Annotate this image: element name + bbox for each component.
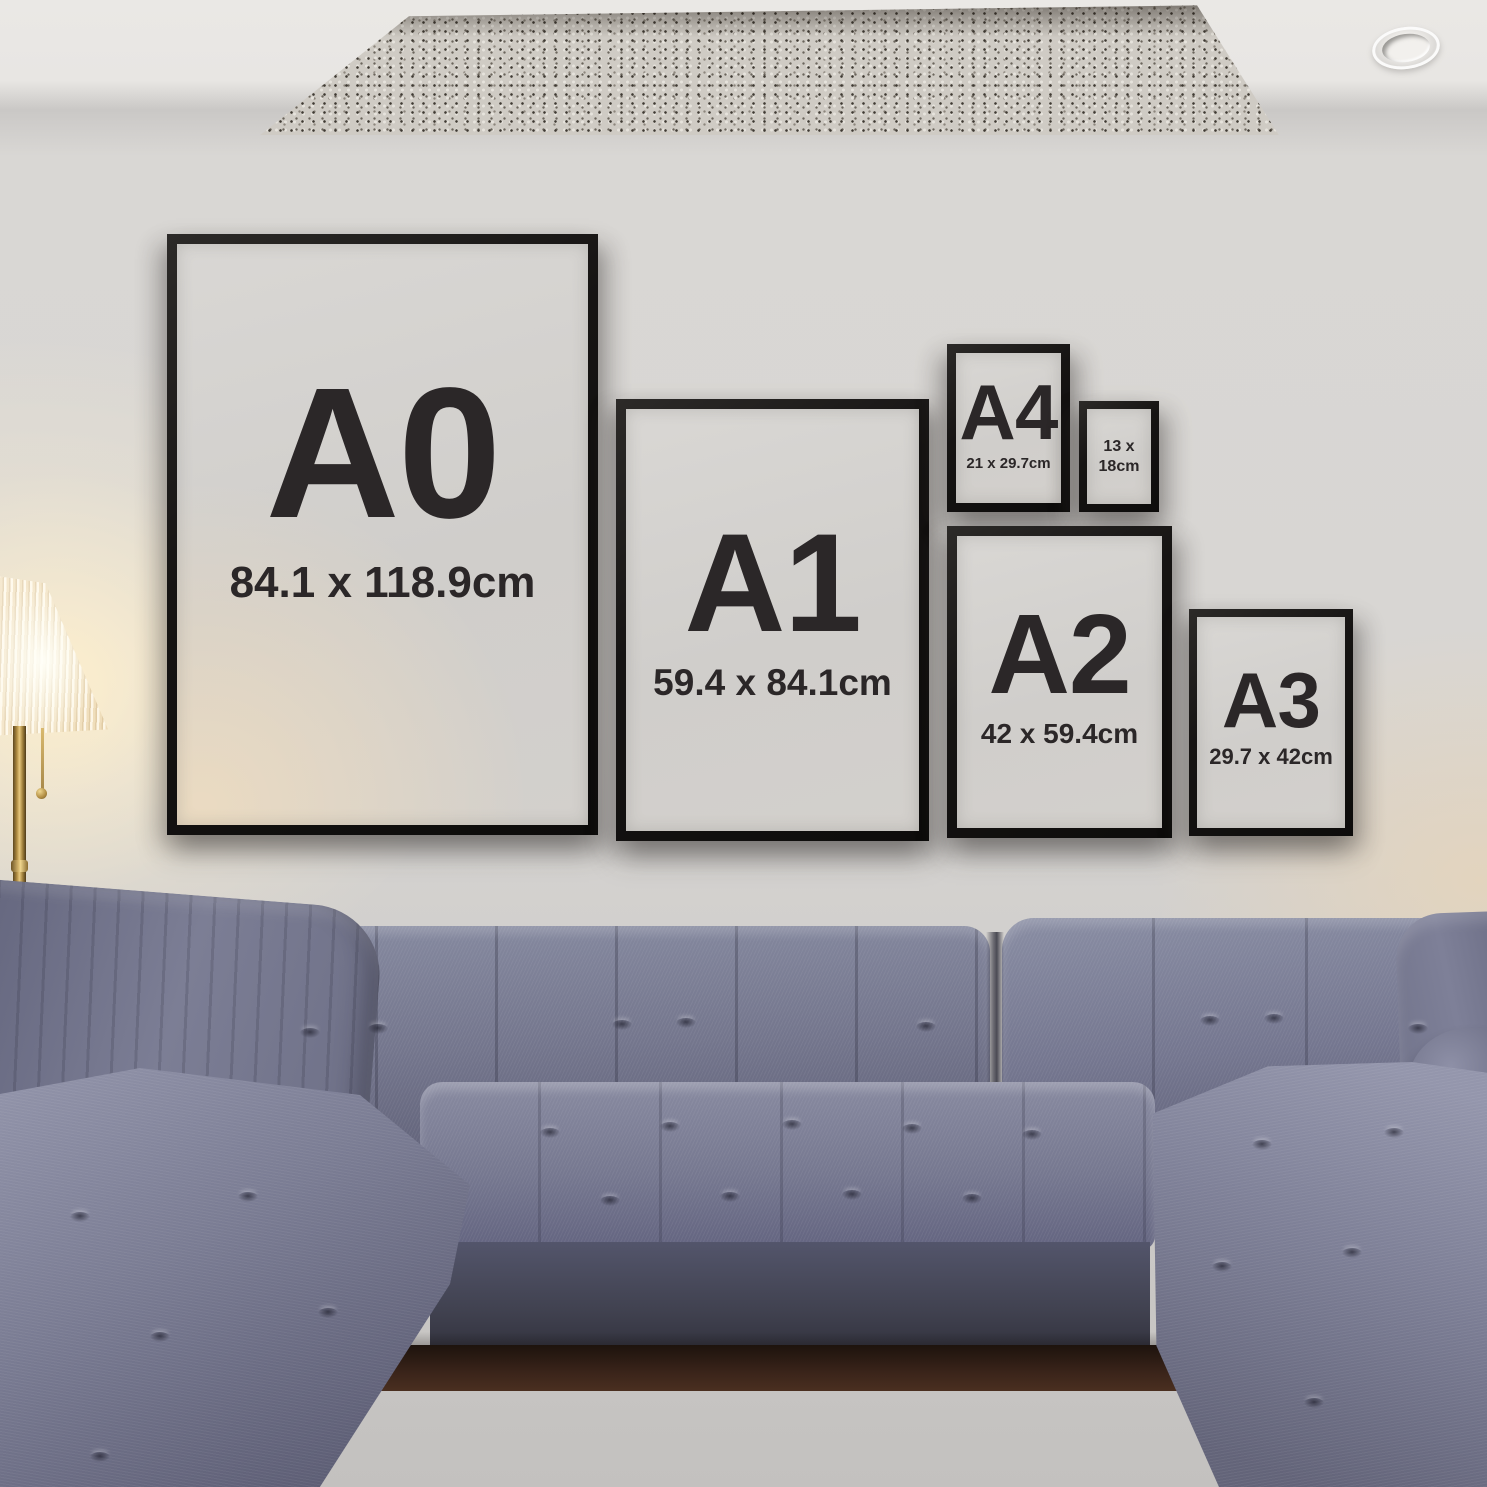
sofa-tuft	[916, 1022, 936, 1032]
poster-frame-a3: A3 29.7 x 42cm	[1189, 609, 1353, 836]
sofa-tuft	[540, 1128, 560, 1138]
poster-content-a1: A1 59.4 x 84.1cm	[653, 513, 892, 704]
poster-frame-a4: A4 21 x 29.7cm	[947, 344, 1070, 512]
sofa-tuft	[368, 1024, 388, 1034]
poster-frame-13x18: 13 x 18cm	[1079, 401, 1159, 512]
size-dimensions-13x18: 13 x 18cm	[1099, 437, 1140, 475]
sofa-chaise-left	[0, 1068, 470, 1487]
lamp-pole-joint	[11, 860, 28, 872]
sofa-tuft	[962, 1194, 982, 1204]
size-dimensions-a1: 59.4 x 84.1cm	[653, 663, 892, 704]
sofa-tuft	[1384, 1128, 1404, 1138]
size-label-a3: A3	[1222, 661, 1320, 739]
poster-content-13x18: 13 x 18cm	[1099, 437, 1140, 475]
sofa-tuft	[600, 1196, 620, 1206]
sofa-chaise-right	[1142, 1062, 1487, 1487]
poster-mat-a1: A1 59.4 x 84.1cm	[626, 409, 919, 831]
sofa-tuft	[1252, 1140, 1272, 1150]
sofa-tuft	[676, 1018, 696, 1028]
size-dimensions-a2: 42 x 59.4cm	[981, 719, 1138, 750]
size-label-a1: A1	[684, 513, 860, 653]
sofa-tuft	[612, 1020, 632, 1030]
size-dimensions-a4: 21 x 29.7cm	[966, 456, 1050, 473]
sofa-tuft	[1304, 1398, 1324, 1408]
wood-floor	[340, 1345, 1280, 1391]
poster-frame-a0: A0 84.1 x 118.9cm	[167, 234, 598, 835]
sofa-tuft	[1264, 1014, 1284, 1024]
size-dimensions-a3: 29.7 x 42cm	[1209, 745, 1333, 769]
sofa-tuft	[902, 1124, 922, 1134]
sofa-tuft	[70, 1212, 90, 1222]
poster-content-a3: A3 29.7 x 42cm	[1209, 661, 1333, 769]
sofa-tuft	[90, 1452, 110, 1462]
size-dimensions-a0: 84.1 x 118.9cm	[230, 559, 536, 607]
sofa-tuft	[318, 1308, 338, 1318]
sofa-tuft	[1022, 1130, 1042, 1140]
recessed-ceiling-light	[1369, 22, 1442, 73]
sofa-seat-cushion-center	[420, 1082, 1155, 1250]
poster-mat-a3: A3 29.7 x 42cm	[1197, 617, 1345, 828]
poster-mat-a0: A0 84.1 x 118.9cm	[177, 244, 588, 825]
ceiling-light-inner-ring	[1380, 31, 1431, 65]
poster-mat-a2: A2 42 x 59.4cm	[957, 536, 1162, 828]
sofa-tuft	[1408, 1024, 1428, 1034]
lamp-pull-chain-ball	[36, 788, 47, 799]
sofa-tuft	[1200, 1016, 1220, 1026]
size-label-a2: A2	[988, 598, 1130, 711]
sofa-tuft	[720, 1192, 740, 1202]
lamp-pull-chain	[41, 728, 44, 790]
sofa-tuft	[782, 1120, 802, 1130]
living-room-photo: A0 84.1 x 118.9cm A1 59.4 x 84.1cm A4 21…	[0, 0, 1487, 1487]
poster-frame-a2: A2 42 x 59.4cm	[947, 526, 1172, 838]
sofa-tuft	[1212, 1262, 1232, 1272]
sofa-tuft	[238, 1192, 258, 1202]
sofa-tuft	[300, 1028, 320, 1038]
poster-mat-a4: A4 21 x 29.7cm	[956, 353, 1061, 503]
poster-frame-a1: A1 59.4 x 84.1cm	[616, 399, 929, 841]
sofa-tuft	[660, 1122, 680, 1132]
sofa-tuft	[1342, 1248, 1362, 1258]
sofa-tuft	[150, 1332, 170, 1342]
sofa-tuft	[842, 1190, 862, 1200]
poster-mat-13x18: 13 x 18cm	[1087, 409, 1151, 504]
size-label-a4: A4	[959, 373, 1057, 451]
poster-content-a4: A4 21 x 29.7cm	[959, 373, 1057, 473]
poster-content-a2: A2 42 x 59.4cm	[981, 598, 1138, 750]
shag-rug	[0, 0, 1487, 135]
size-label-a0: A0	[265, 361, 499, 547]
poster-content-a0: A0 84.1 x 118.9cm	[230, 361, 536, 607]
